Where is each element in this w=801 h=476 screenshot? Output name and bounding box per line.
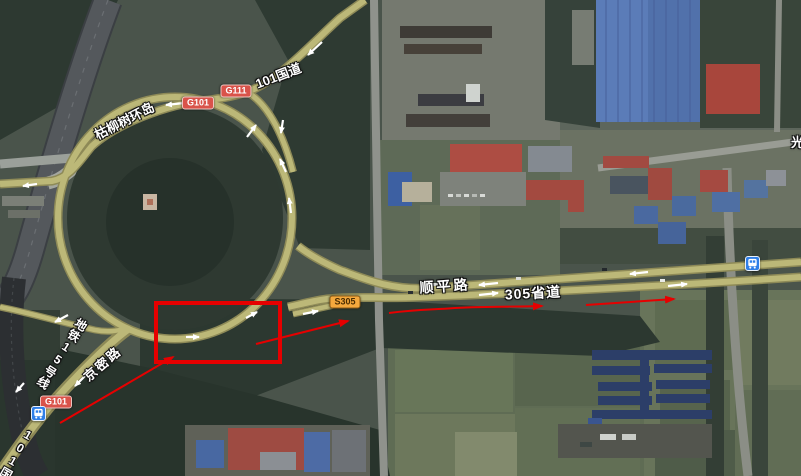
map-canvas [0,0,801,476]
road-shield-g101-north: G101 [182,97,214,110]
train-glyph [746,257,759,270]
road-shield-g111: G111 [220,85,251,98]
metro-station-icon[interactable] [31,406,46,421]
train-glyph [32,407,45,420]
road-shield-s305: S305 [329,296,360,309]
satellite-map[interactable]: 枯柳树环岛 101国道 顺平路 305省道 京密路 地铁15号线 101国道 光… [0,0,801,476]
bus-station-icon[interactable] [745,256,760,271]
